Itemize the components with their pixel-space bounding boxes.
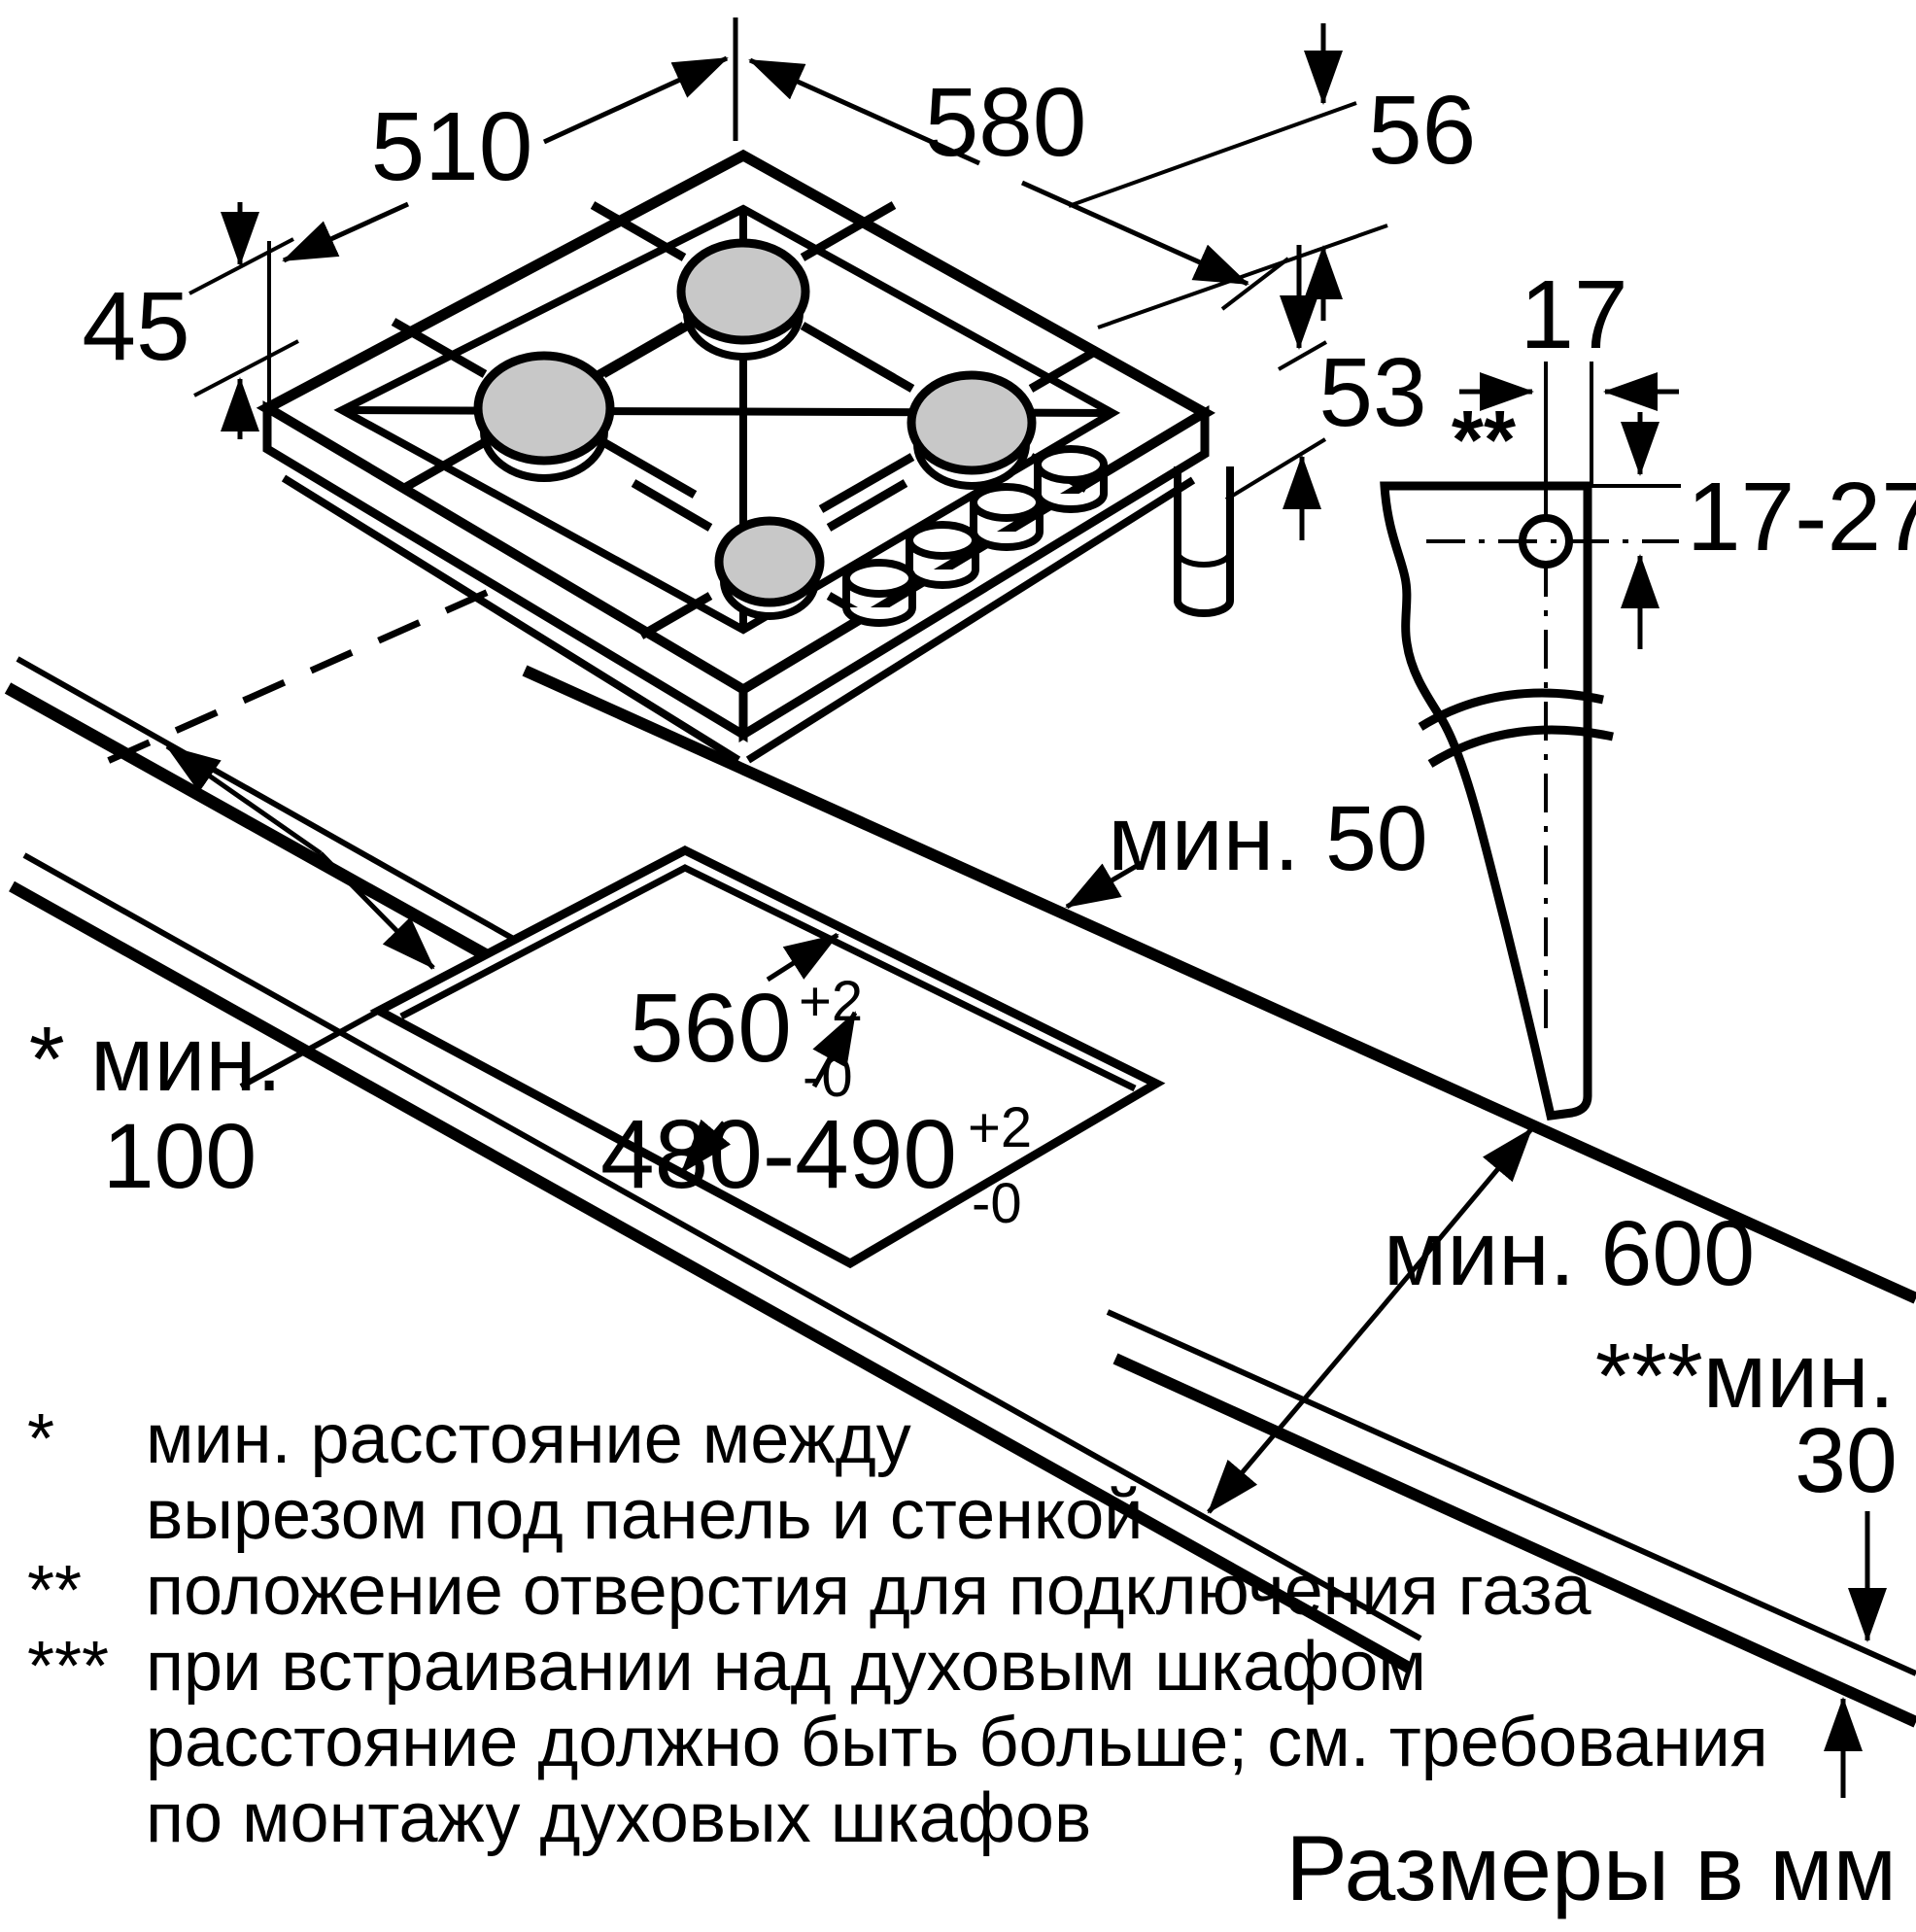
dim-56-label: 56 (1368, 76, 1476, 185)
dim-arrow (167, 746, 321, 853)
burner-right (911, 375, 1032, 470)
min-50-label: мин. 50 (1108, 787, 1427, 890)
footnotes: * мин. расстояние между вырезом под пане… (27, 1400, 1897, 1920)
dim-480-490-label: 480-490 (600, 1100, 957, 1209)
min-100-value: 100 (103, 1105, 257, 1208)
dim-580-label: 580 (925, 68, 1087, 177)
knob (974, 487, 1040, 547)
knob (1038, 449, 1104, 509)
burner-left (478, 356, 610, 461)
footnote-line-6: по монтажу духовых шкафов (146, 1779, 1091, 1857)
installation-diagram-page: 17 ** 17-27 560 +2 -0 480-490 +2 -0 (0, 0, 1916, 1932)
footnote-line-1: мин. расстояние между (146, 1400, 911, 1478)
dim-17-27-label: 17-27 (1687, 463, 1916, 571)
footnote-marker-3: *** (27, 1628, 109, 1706)
dim-17-label: 17 (1520, 260, 1627, 369)
min-30-value: 30 (1795, 1409, 1898, 1512)
burner-front (719, 521, 820, 603)
dim-480-490-tol-plus: +2 (968, 1096, 1032, 1159)
footnote-line-4: при встраивании над духовым шкафом (146, 1628, 1426, 1706)
footnote-line-2: вырезом под панель и стенкой (146, 1476, 1143, 1554)
knob (909, 525, 975, 585)
extension-line (1098, 225, 1387, 328)
extension-line (1222, 259, 1288, 309)
extension-line (194, 341, 298, 396)
min-600-label: мин. 600 (1384, 1202, 1755, 1305)
gas-connection-cross-section: 17 ** 17-27 (1385, 260, 1916, 1116)
footnote-line-5: расстояние должно быть больше; см. требо… (146, 1704, 1768, 1781)
burner-back (681, 243, 805, 340)
hob-isometric-view (267, 155, 1230, 760)
gas-hole-marker: ** (1452, 395, 1516, 487)
dim-53-label: 53 (1318, 338, 1426, 447)
footnote-line-3: положение отверстия для подключения газа (146, 1552, 1592, 1630)
dim-560-tol-plus: +2 (799, 970, 863, 1033)
dim-560-label: 560 (630, 974, 792, 1083)
footnote-marker-2: ** (27, 1552, 82, 1630)
units-note: Размеры в мм (1285, 1817, 1897, 1920)
dim-arrow (544, 58, 727, 142)
dim-45-label: 45 (82, 272, 189, 381)
extension-line (1226, 439, 1325, 500)
gas-hob-installation-diagram: 17 ** 17-27 560 +2 -0 480-490 +2 -0 (0, 0, 1916, 1932)
dim-510-label: 510 (371, 92, 533, 201)
min-100-label: * мин. (29, 1008, 283, 1111)
knob (846, 563, 912, 623)
footnote-marker-1: * (27, 1400, 54, 1478)
dim-arrow (284, 204, 408, 260)
dim-480-490-tol-minus: -0 (972, 1172, 1022, 1235)
extension-line (1069, 103, 1356, 206)
dim-arrow (1022, 183, 1248, 284)
